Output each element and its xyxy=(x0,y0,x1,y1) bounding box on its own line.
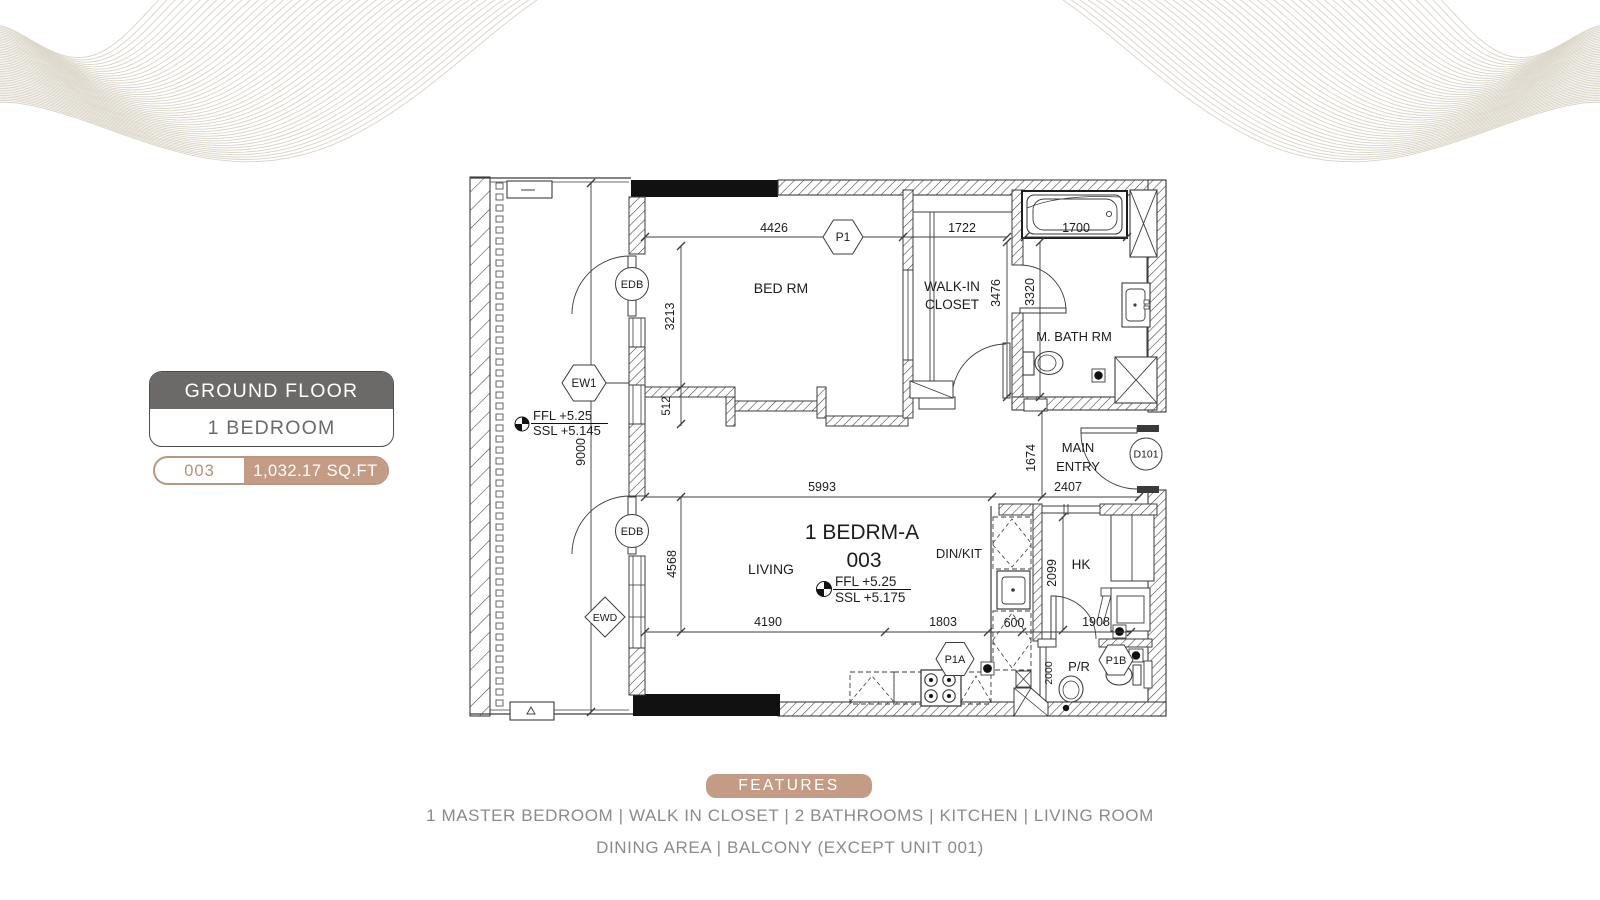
svg-text:EDB: EDB xyxy=(621,526,644,538)
svg-text:DIN/KIT: DIN/KIT xyxy=(936,546,982,561)
svg-text:EDB: EDB xyxy=(621,279,644,291)
svg-text:600: 600 xyxy=(1004,616,1025,630)
svg-text:P1B: P1B xyxy=(1106,655,1127,667)
svg-text:HK: HK xyxy=(1072,557,1091,572)
svg-text:LIVING: LIVING xyxy=(748,561,794,577)
svg-text:ENTRY: ENTRY xyxy=(1056,459,1100,474)
svg-text:2407: 2407 xyxy=(1054,480,1082,494)
svg-text:FFL +5.25: FFL +5.25 xyxy=(533,408,592,423)
svg-text:2000: 2000 xyxy=(1043,661,1055,685)
svg-text:1803: 1803 xyxy=(929,615,957,629)
svg-text:WALK-IN: WALK-IN xyxy=(924,279,980,294)
svg-text:MAIN: MAIN xyxy=(1062,440,1095,455)
svg-text:9000: 9000 xyxy=(574,438,588,466)
svg-text:P1: P1 xyxy=(836,230,851,244)
svg-text:CLOSET: CLOSET xyxy=(925,297,979,312)
svg-text:4190: 4190 xyxy=(754,615,782,629)
svg-text:1674: 1674 xyxy=(1024,444,1038,472)
svg-text:512: 512 xyxy=(661,396,673,415)
svg-text:3476: 3476 xyxy=(989,279,1003,307)
svg-text:1 BEDRM-A: 1 BEDRM-A xyxy=(805,521,919,544)
svg-text:1700: 1700 xyxy=(1062,221,1090,235)
svg-text:EWD: EWD xyxy=(593,612,618,624)
svg-text:P1A: P1A xyxy=(945,654,966,666)
svg-text:EW1: EW1 xyxy=(572,378,597,390)
svg-text:4568: 4568 xyxy=(665,550,679,578)
svg-text:M. BATH RM: M. BATH RM xyxy=(1036,329,1112,344)
svg-text:1722: 1722 xyxy=(948,221,976,235)
svg-text:SSL +5.145: SSL +5.145 xyxy=(533,423,601,438)
svg-text:D101: D101 xyxy=(1133,449,1158,461)
svg-text:2099: 2099 xyxy=(1045,559,1059,587)
svg-text:FFL +5.25: FFL +5.25 xyxy=(835,574,896,589)
svg-text:003: 003 xyxy=(846,549,881,572)
svg-text:BED RM: BED RM xyxy=(754,280,808,296)
svg-text:SSL +5.175: SSL +5.175 xyxy=(835,590,905,605)
svg-text:3320: 3320 xyxy=(1023,278,1037,306)
svg-text:P/R: P/R xyxy=(1068,659,1090,674)
svg-text:3213: 3213 xyxy=(663,303,677,331)
svg-text:5993: 5993 xyxy=(808,480,836,494)
svg-text:4426: 4426 xyxy=(760,221,788,235)
svg-text:1908: 1908 xyxy=(1082,615,1110,629)
